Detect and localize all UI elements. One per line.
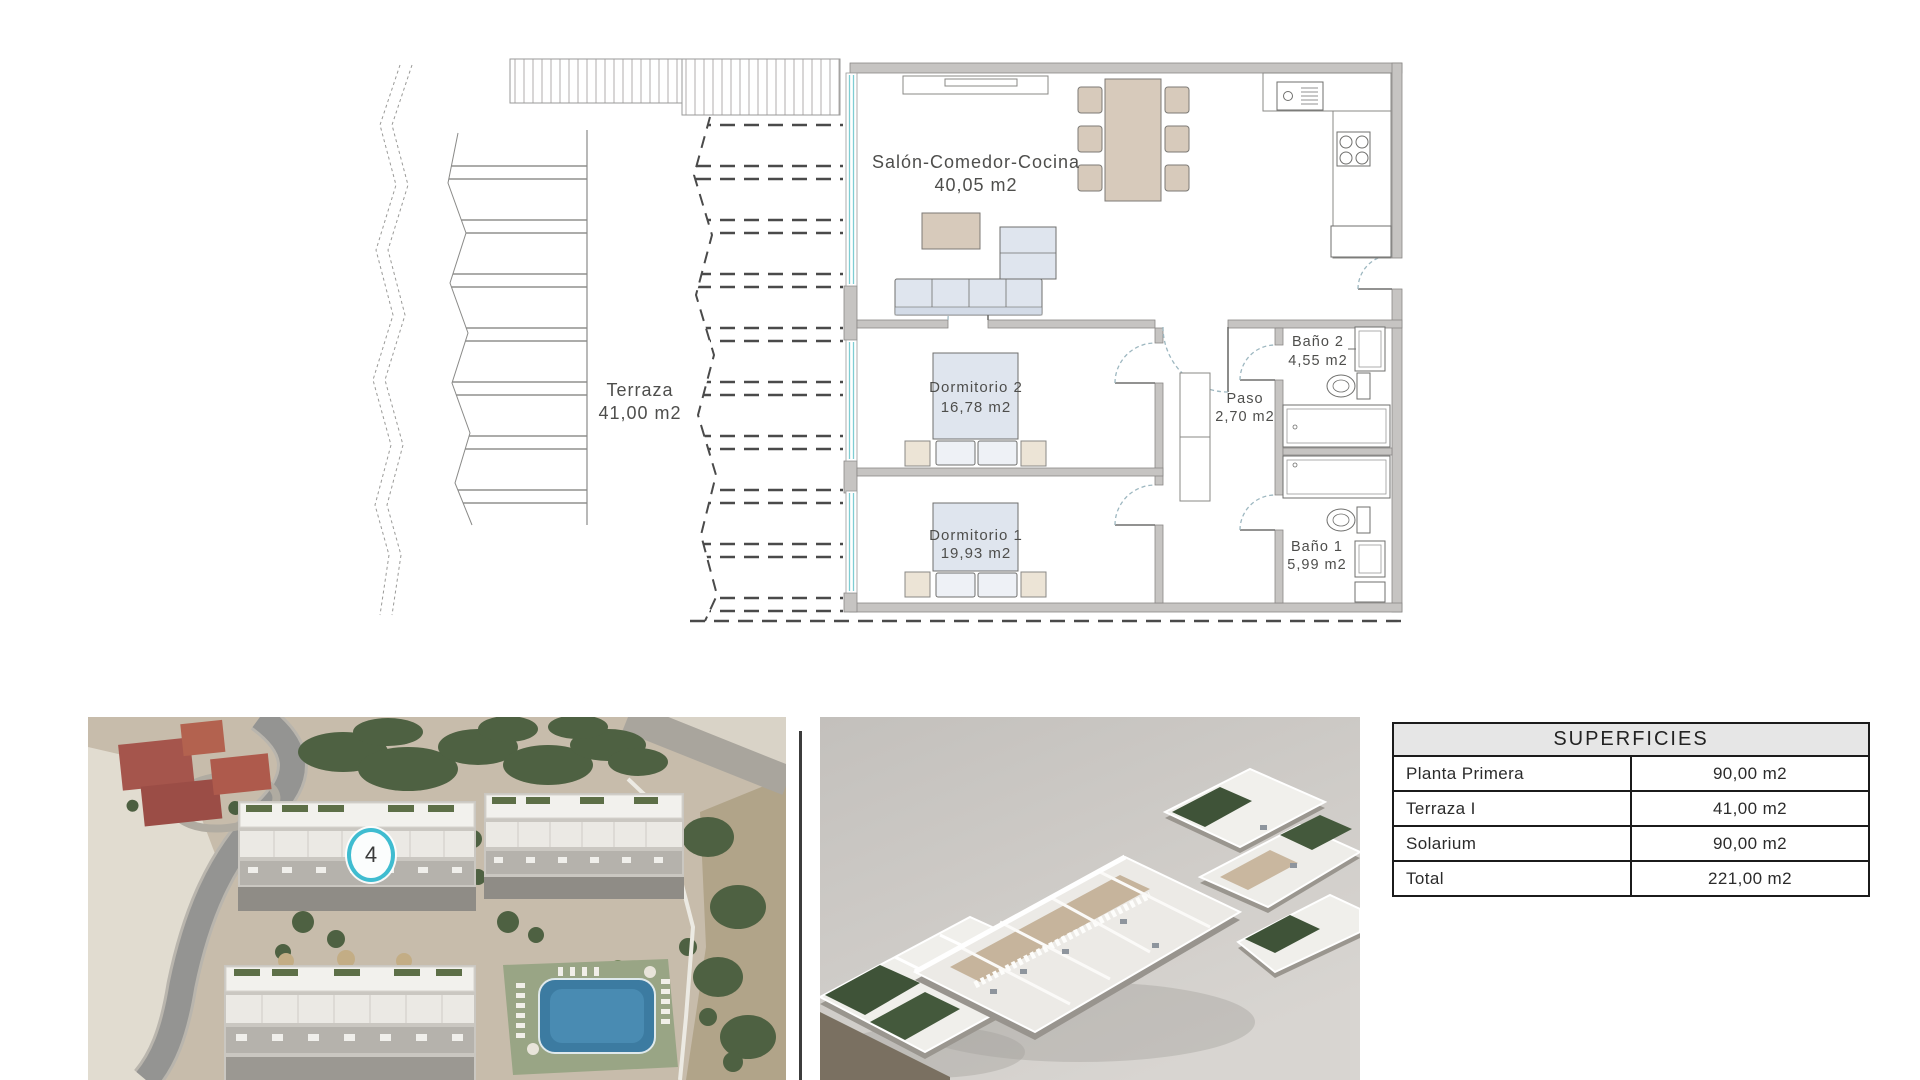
wall-left-chunk2 (844, 461, 857, 493)
wall-right-upper (1392, 63, 1402, 258)
wall-dorm2-dorm1 (857, 468, 1163, 476)
terraza-area: 41,00 m2 (598, 403, 681, 423)
paso-label: Paso (1226, 391, 1263, 407)
bano1-shower-symbol (1283, 456, 1390, 498)
kitchen-cabinet-symbol (1331, 226, 1391, 257)
wall-paso-seg1 (1155, 328, 1163, 343)
bano1-bidet-symbol (1355, 582, 1385, 602)
bano1-label: Baño 1 (1291, 539, 1343, 555)
wall-paso-seg3 (1155, 525, 1163, 603)
render-3d (820, 717, 1360, 1080)
floor-plan: Terraza 41,00 m2 Salón-Comedor-Cocina 40… (360, 55, 1405, 630)
wall-bano-seg3 (1275, 530, 1283, 603)
umbrella (527, 1043, 539, 1055)
aerial-photo (88, 717, 786, 1080)
stairs-hatch-left (510, 59, 682, 103)
floor-plan-panel: Terraza 41,00 m2 Salón-Comedor-Cocina 40… (360, 55, 1405, 630)
unit-marker-number: 4 (365, 842, 377, 868)
bano2-toilet-symbol (1327, 373, 1370, 399)
table-row: Solarium 90,00 m2 (1393, 826, 1869, 861)
bed1-pillow-left (936, 573, 975, 597)
render-3d-panel (820, 717, 1360, 1080)
brochure-page: Terraza 41,00 m2 Salón-Comedor-Cocina 40… (0, 0, 1920, 1080)
building-block-c (224, 950, 476, 1080)
table-row: Total 221,00 m2 (1393, 861, 1869, 896)
bed2-pillow-right (978, 441, 1017, 465)
table-row: Terraza I 41,00 m2 (1393, 791, 1869, 826)
terrain-contours (448, 133, 587, 525)
wall-salon-dorm2-right (988, 320, 1155, 328)
dining-set-symbol (1078, 79, 1189, 201)
wall-bano-seg1 (1275, 328, 1283, 345)
wall-salon-dorm2-left (857, 320, 948, 328)
nightstand1-left (905, 572, 930, 597)
coffee-table-symbol (922, 213, 980, 249)
bano1-area: 5,99 m2 (1287, 557, 1346, 573)
bano2-shower-symbol (1283, 405, 1390, 447)
nightstand1-right (1021, 572, 1046, 597)
dormitorio2-area: 16,78 m2 (941, 399, 1012, 416)
stairs-hatch-right (682, 59, 840, 115)
terrain-edge-outer (373, 65, 400, 615)
salon-area: 40,05 m2 (934, 175, 1017, 195)
hob-symbol (1337, 132, 1370, 166)
row-label: Terraza I (1393, 791, 1631, 826)
tv-symbol (945, 79, 1017, 86)
wall-right-lower (1392, 289, 1402, 612)
bano2-label: Baño 2 (1292, 334, 1344, 350)
kitchen-sink-symbol (1277, 82, 1323, 110)
window-strip-salon (846, 73, 857, 286)
bed2-pillow-left (936, 441, 975, 465)
wall-bano2-bano1 (1283, 448, 1392, 455)
wall-left-chunk1 (844, 286, 857, 340)
row-value: 90,00 m2 (1631, 756, 1869, 791)
row-label: Planta Primera (1393, 756, 1631, 791)
dormitorio1-area: 19,93 m2 (941, 545, 1012, 562)
bano2-area: 4,55 m2 (1288, 353, 1347, 369)
dormitorio2-label: Dormitorio 2 (929, 379, 1023, 396)
surfaces-table: SUPERFICIES Planta Primera 90,00 m2 Terr… (1392, 722, 1870, 897)
dormitorio1-label: Dormitorio 1 (929, 527, 1023, 544)
row-value: 90,00 m2 (1631, 826, 1869, 861)
umbrella (644, 966, 656, 978)
pool (503, 959, 678, 1075)
aerial-photo-panel: 4 (88, 717, 786, 1080)
wall-bottom (850, 603, 1402, 612)
wall-left-chunk3 (844, 593, 857, 612)
table-row: Planta Primera 90,00 m2 (1393, 756, 1869, 791)
surfaces-table-title: SUPERFICIES (1393, 723, 1869, 756)
wall-top (850, 63, 1402, 73)
nightstand2-left (905, 441, 930, 466)
row-label: Solarium (1393, 826, 1631, 861)
nightstand2-right (1021, 441, 1046, 466)
row-label: Total (1393, 861, 1631, 896)
terrain-edge-inner (385, 65, 412, 615)
wall-bano-seg2 (1275, 380, 1283, 495)
bano2-sink-symbol (1355, 327, 1385, 371)
window-strip-dorm1 (846, 491, 857, 593)
paso-area: 2,70 m2 (1215, 409, 1274, 425)
window-strip-dorm2 (846, 340, 857, 461)
bano1-sink-symbol (1355, 541, 1385, 577)
bed2-symbol (933, 353, 1018, 439)
row-value: 41,00 m2 (1631, 791, 1869, 826)
bed1-pillow-right (978, 573, 1017, 597)
pergola-slats (694, 117, 843, 621)
building-block-b (484, 793, 684, 899)
terraza-label: Terraza (606, 380, 673, 400)
paso-closet (1180, 373, 1210, 501)
unit-marker[interactable]: 4 (347, 828, 395, 882)
bano1-toilet-symbol (1327, 507, 1370, 533)
row-value: 221,00 m2 (1631, 861, 1869, 896)
vertical-divider (799, 731, 802, 1080)
salon-label: Salón-Comedor-Cocina (872, 152, 1080, 172)
